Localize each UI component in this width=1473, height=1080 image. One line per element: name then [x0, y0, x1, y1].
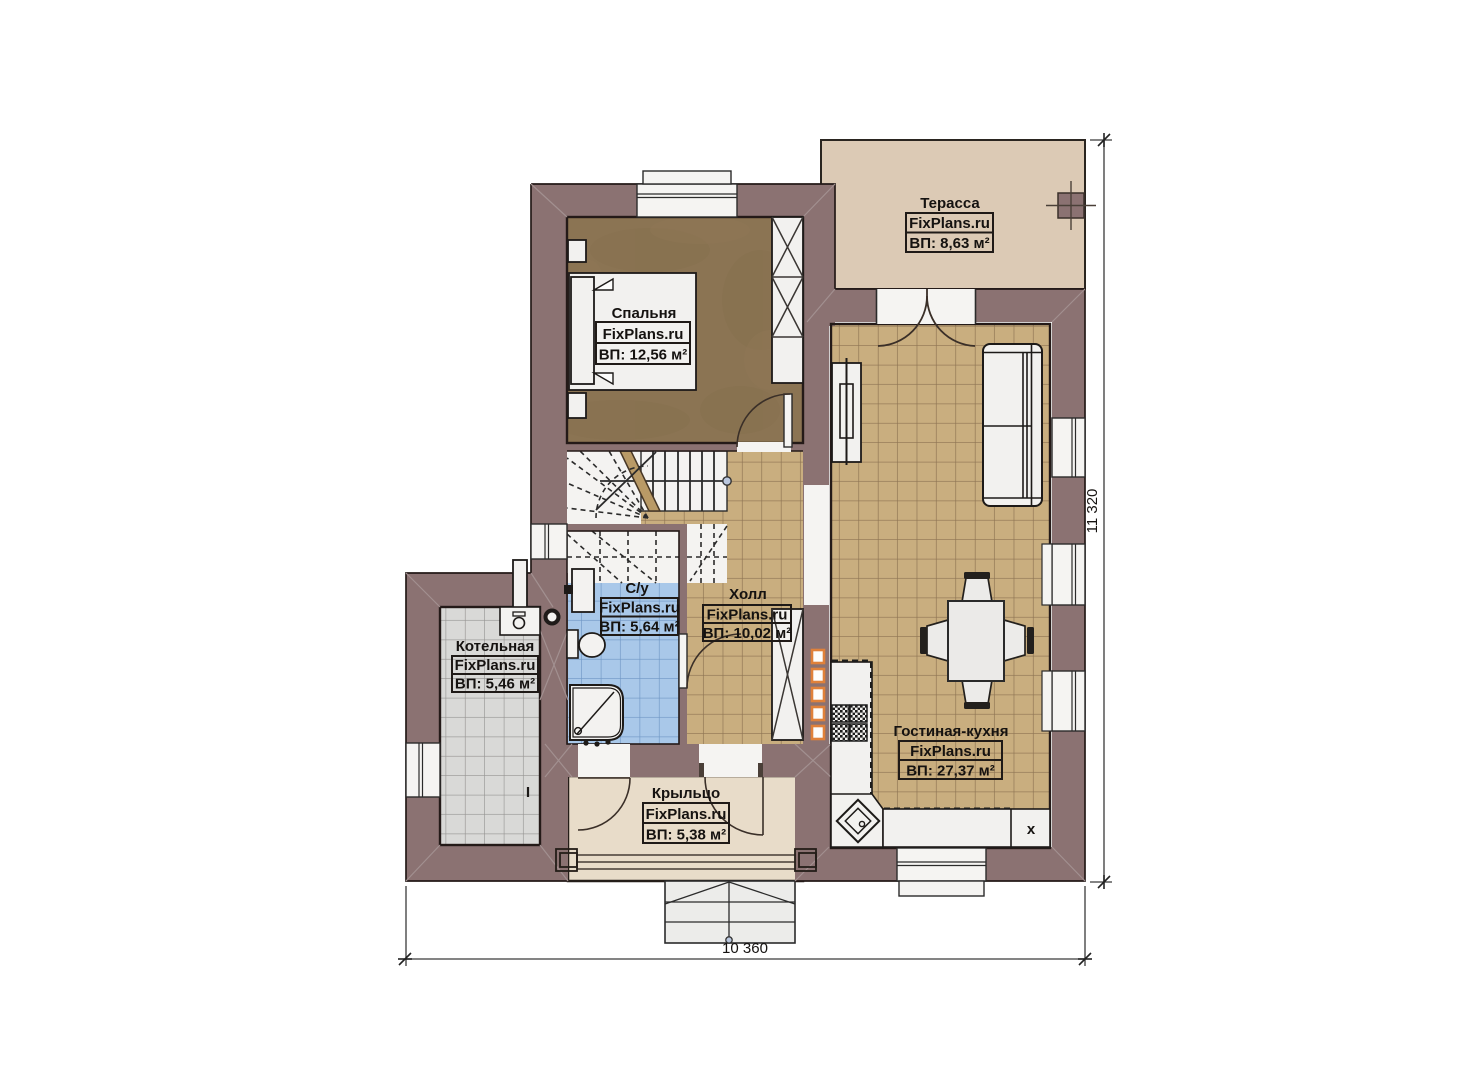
svg-text:FixPlans.ru: FixPlans.ru [599, 600, 680, 617]
svg-text:FixPlans.ru: FixPlans.ru [646, 806, 727, 823]
svg-text:11 320: 11 320 [1084, 489, 1101, 534]
svg-text:FixPlans.ru: FixPlans.ru [910, 743, 991, 760]
svg-text:ВП: 5,64 м²: ВП: 5,64 м² [599, 619, 679, 636]
svg-text:Терасса: Терасса [920, 195, 980, 212]
svg-text:ВП: 27,37 м²: ВП: 27,37 м² [906, 763, 995, 780]
svg-text:ВП: 12,56 м²: ВП: 12,56 м² [599, 347, 688, 364]
svg-text:10 360: 10 360 [722, 940, 768, 957]
svg-text:FixPlans.ru: FixPlans.ru [909, 215, 990, 232]
svg-text:FixPlans.ru: FixPlans.ru [707, 607, 788, 624]
svg-text:С/у: С/у [625, 580, 649, 597]
svg-text:ВП: 8,63 м²: ВП: 8,63 м² [909, 235, 989, 252]
svg-text:ВП: 5,38 м²: ВП: 5,38 м² [646, 827, 726, 844]
svg-text:Крыльцо: Крыльцо [652, 785, 720, 802]
svg-text:Гостиная-кухня: Гостиная-кухня [894, 723, 1009, 740]
svg-text:Котельная: Котельная [456, 638, 535, 655]
svg-text:ВП: 5,46 м²: ВП: 5,46 м² [455, 676, 535, 693]
svg-text:Спальня: Спальня [612, 305, 677, 322]
svg-text:ВП: 10,02 м²: ВП: 10,02 м² [703, 625, 792, 642]
svg-text:Холл: Холл [729, 586, 767, 603]
svg-text:FixPlans.ru: FixPlans.ru [455, 657, 536, 674]
svg-text:FixPlans.ru: FixPlans.ru [603, 326, 684, 343]
svg-text:x: x [1027, 821, 1036, 838]
